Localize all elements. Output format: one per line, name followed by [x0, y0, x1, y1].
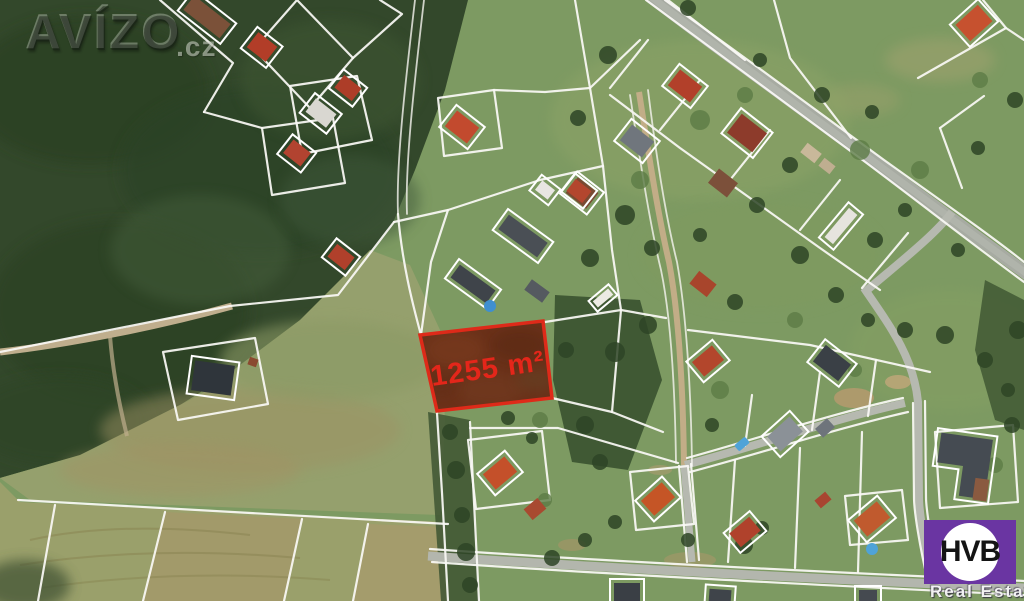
- hvb-subtitle: Real Estate: [930, 582, 1024, 601]
- hvb-monogram: HVB: [940, 535, 1000, 569]
- map-canvas: 1255 m²: [0, 0, 1024, 601]
- aerial-cadastral-map: 1255 m² AVÍZO.cz HVB Real Estate: [0, 0, 1024, 601]
- hvb-logo: HVB: [924, 520, 1016, 584]
- hvb-logo-circle: HVB: [941, 523, 999, 581]
- watermark-brand: AVÍZO: [26, 7, 182, 61]
- watermark-avizo: AVÍZO.cz: [26, 10, 216, 61]
- watermark-suffix: .cz: [176, 31, 216, 62]
